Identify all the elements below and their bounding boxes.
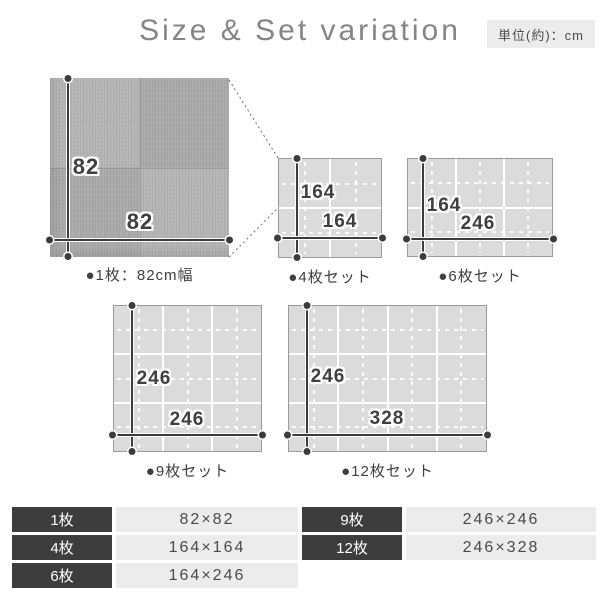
height-dimension-line bbox=[296, 158, 298, 258]
table-row: 4枚 164×164 bbox=[12, 535, 298, 560]
width-dimension-line bbox=[407, 238, 553, 240]
height-dimension-value: 164 bbox=[301, 182, 336, 204]
height-dimension-line bbox=[422, 158, 424, 257]
set-4-mat-surface bbox=[278, 158, 382, 258]
set-12-caption: ●12枚セット bbox=[341, 460, 434, 481]
half-mat-dashed-line bbox=[304, 162, 306, 254]
width-dimension-value: 328 bbox=[370, 408, 405, 430]
half-mat-dashed-line bbox=[355, 162, 357, 254]
height-dimension-value: 164 bbox=[427, 195, 462, 217]
unit-note: 単位(約)：cm bbox=[487, 20, 595, 48]
set-9-diagram: 246 246 ●9枚セット bbox=[113, 305, 262, 452]
mat-boundary-line bbox=[279, 207, 381, 209]
width-dimension-value: 246 bbox=[461, 213, 496, 235]
half-mat-dashed-line bbox=[411, 182, 549, 184]
set-12-diagram: 246 328 ●12枚セット bbox=[288, 305, 487, 452]
width-dimension-value: 164 bbox=[323, 211, 358, 233]
size-table-left: 1枚 82×82 4枚 164×164 6枚 164×246 bbox=[12, 507, 298, 591]
width-dimension-line bbox=[288, 434, 487, 436]
height-dimension-line bbox=[67, 78, 69, 257]
mat-boundary-line bbox=[289, 402, 486, 404]
piece-count-cell: 4枚 bbox=[12, 535, 112, 560]
half-mat-dashed-line bbox=[292, 329, 483, 331]
width-dimension-line bbox=[113, 434, 262, 436]
width-dimension-value: 82 bbox=[127, 209, 153, 235]
piece-count-cell: 9枚 bbox=[302, 507, 402, 532]
height-dimension-value: 246 bbox=[311, 366, 346, 388]
size-value-cell: 246×328 bbox=[406, 535, 596, 560]
height-dimension-value: 246 bbox=[137, 368, 172, 390]
table-row: 9枚 246×246 bbox=[302, 507, 596, 532]
set-6-diagram: 164 246 ●6枚セット bbox=[407, 158, 553, 257]
projection-line-bottom bbox=[229, 208, 278, 257]
size-value-cell: 82×82 bbox=[116, 507, 298, 532]
size-value-cell: 246×246 bbox=[406, 507, 596, 532]
size-value-cell: 164×246 bbox=[116, 563, 298, 588]
size-value-cell: 164×164 bbox=[116, 535, 298, 560]
set-9-caption: ●9枚セット bbox=[146, 460, 229, 481]
table-row: 12枚 246×328 bbox=[302, 535, 596, 560]
width-dimension-line bbox=[50, 239, 229, 241]
width-dimension-line bbox=[278, 237, 382, 239]
piece-count-cell: 6枚 bbox=[12, 563, 112, 588]
height-dimension-line bbox=[131, 305, 133, 452]
single-mat-caption: ●1枚：82cm幅 bbox=[85, 264, 193, 285]
height-dimension-line bbox=[306, 305, 308, 452]
set-4-diagram: 164 164 ●4枚セット bbox=[278, 158, 382, 258]
table-row: 1枚 82×82 bbox=[12, 507, 298, 532]
table-row: 6枚 164×246 bbox=[12, 563, 298, 588]
set-6-caption: ●6枚セット bbox=[438, 265, 521, 286]
single-mat-diagram: 82 82 ●1枚：82cm幅 bbox=[50, 78, 229, 257]
piece-count-cell: 12枚 bbox=[302, 535, 402, 560]
set-4-caption: ●4枚セット bbox=[288, 266, 371, 287]
half-mat-dashed-line bbox=[117, 329, 258, 331]
width-dimension-value: 246 bbox=[170, 409, 205, 431]
projection-line-top bbox=[229, 80, 278, 158]
piece-count-cell: 1枚 bbox=[12, 507, 112, 532]
size-table-right: 9枚 246×246 12枚 246×328 bbox=[302, 507, 596, 563]
mat-boundary-line bbox=[289, 353, 486, 355]
height-dimension-value: 82 bbox=[73, 154, 99, 180]
